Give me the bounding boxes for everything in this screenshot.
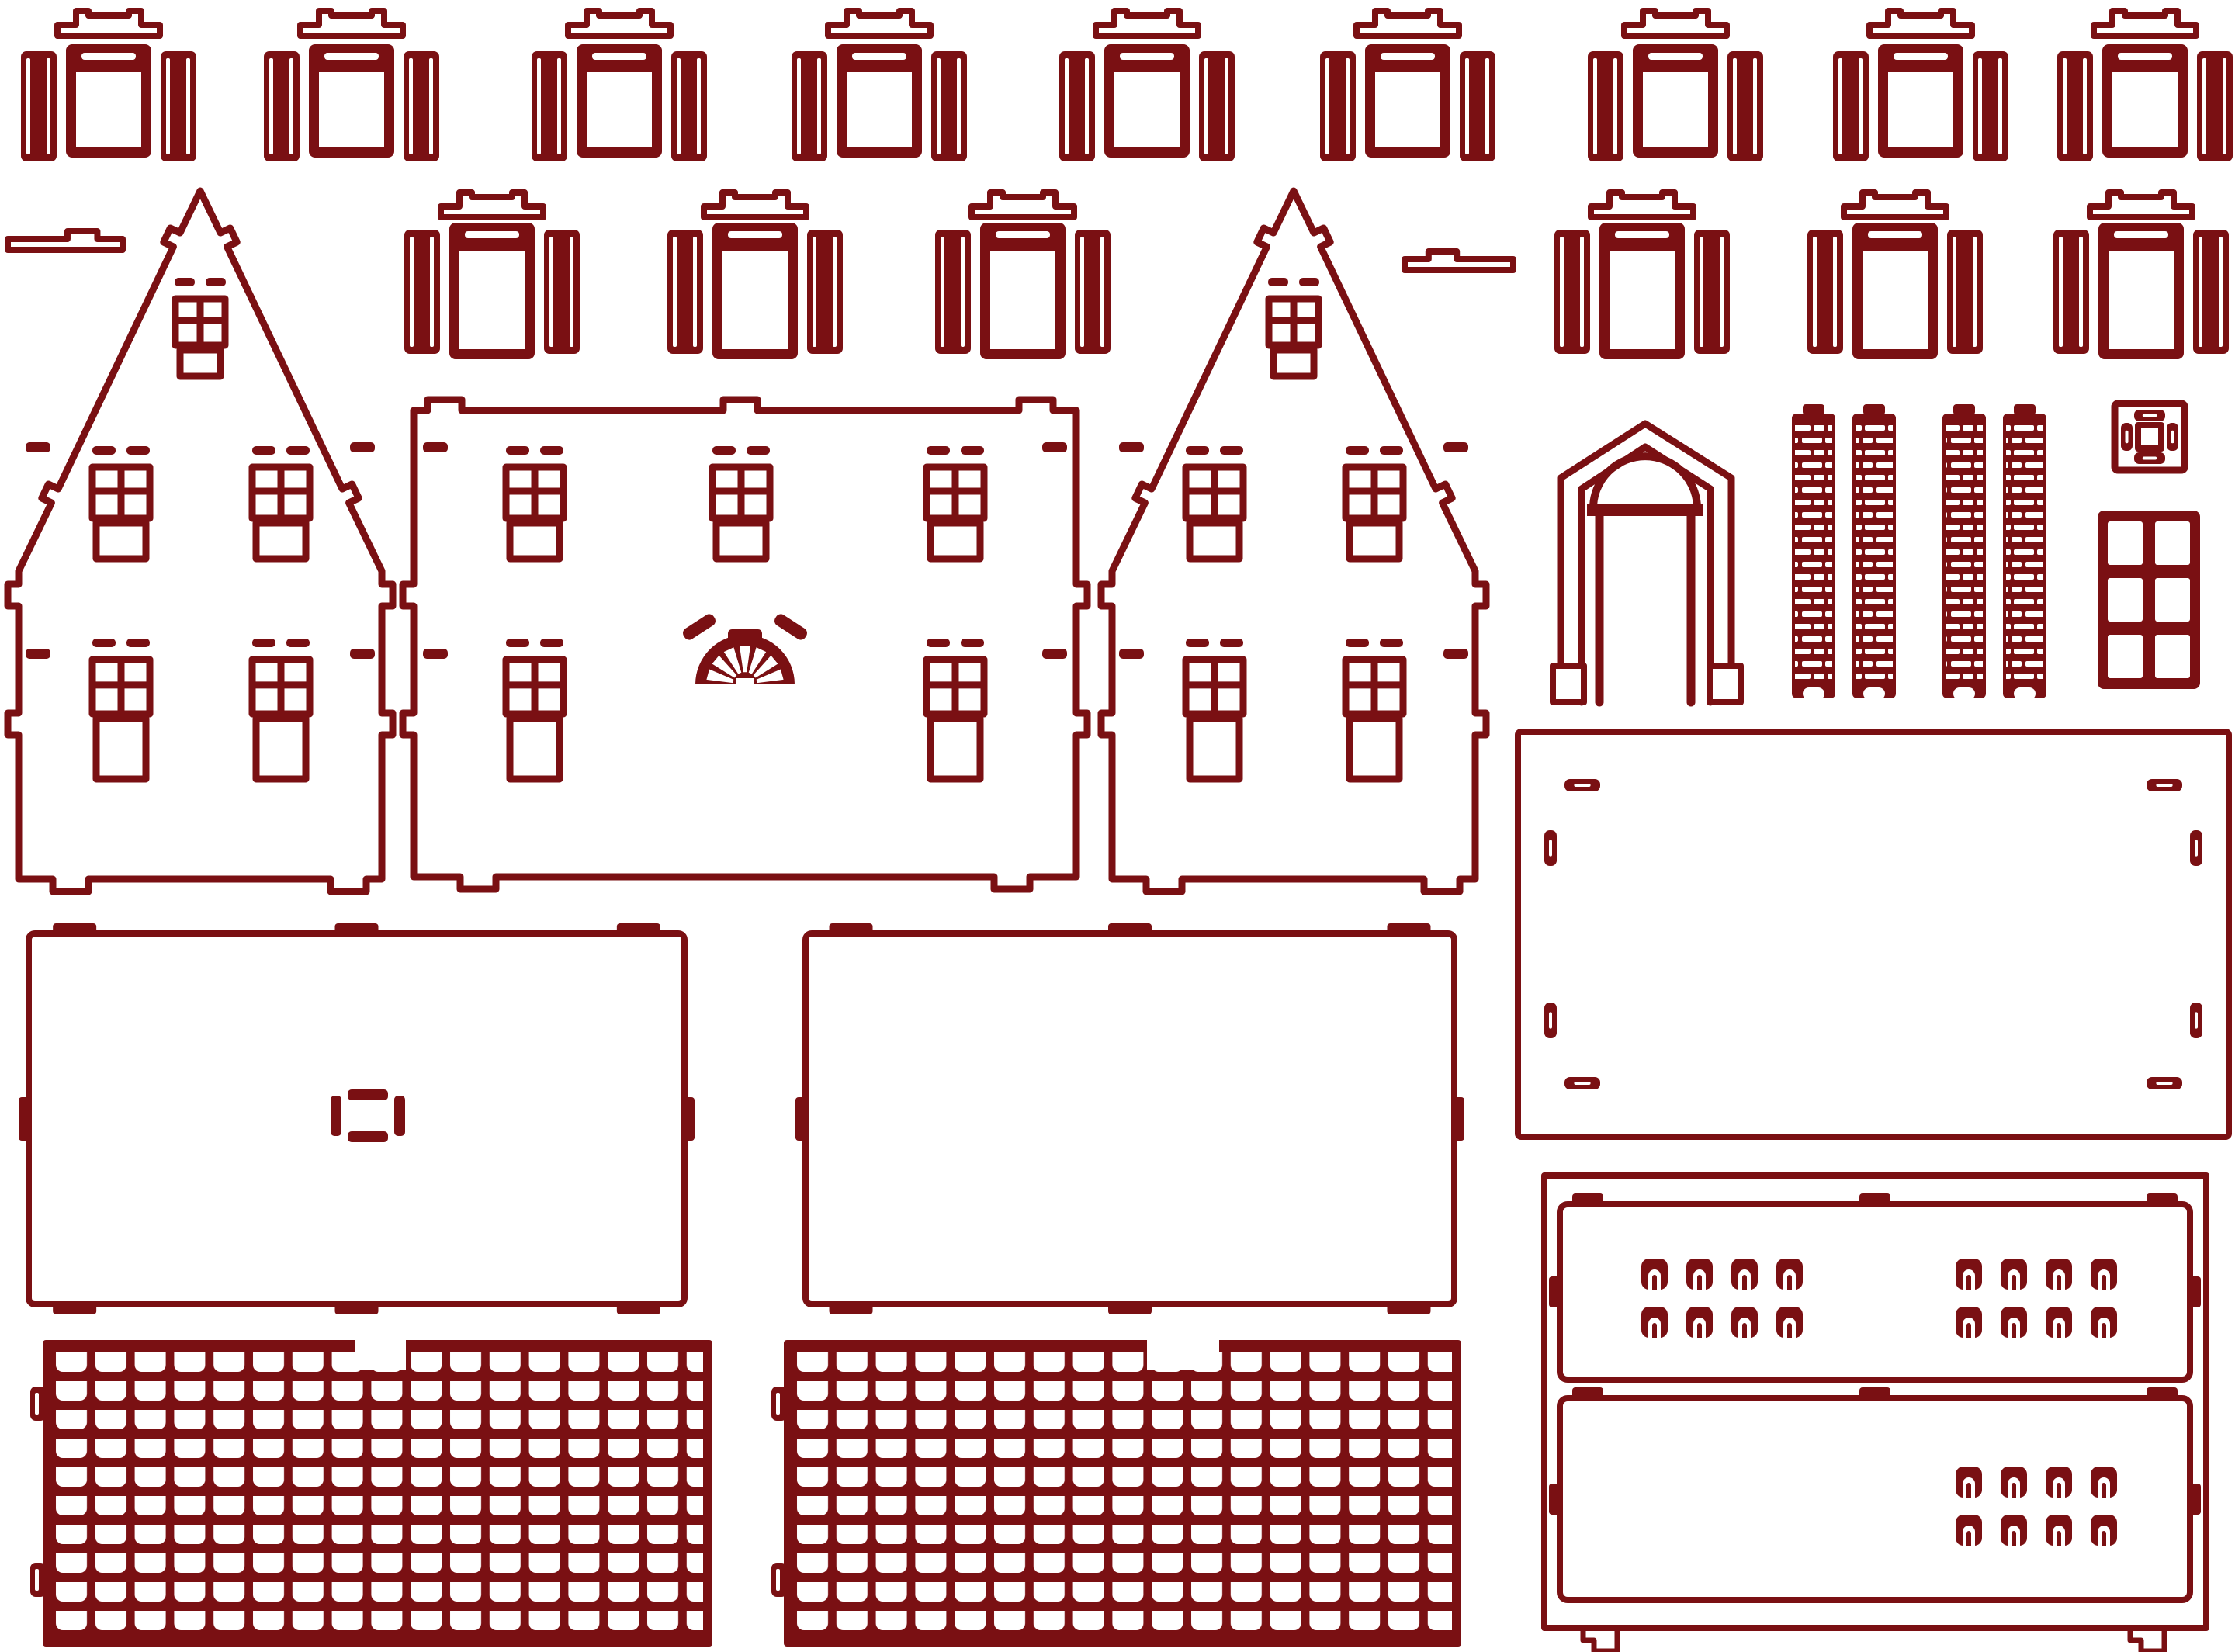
blank-panel [19, 923, 695, 1314]
roof-tile-panel [771, 1339, 1461, 1647]
drawer-clip [2091, 1467, 2117, 1498]
roof-tile-panel [30, 1339, 712, 1647]
shelf-panel [1549, 1387, 2201, 1600]
brick-chimney-strip [1792, 404, 1835, 700]
window-shutter-set [1320, 11, 1495, 161]
window-shutter-set [264, 11, 439, 161]
window-shutter-set [21, 11, 196, 161]
drawer-clip [2091, 1307, 2117, 1338]
drawer-clip [1731, 1307, 1758, 1338]
blank-panel [795, 923, 1464, 1314]
drawer-clip [2046, 1515, 2072, 1546]
window-shutter-set [1059, 11, 1235, 161]
door-arch [1553, 424, 1741, 702]
window-shutter-set [1833, 11, 2008, 161]
drawer-clip [2046, 1307, 2072, 1338]
window-rows [21, 11, 2233, 359]
gable-end-wall [8, 191, 393, 892]
window-shutter-set [404, 192, 580, 359]
drawer-clip [1686, 1307, 1713, 1338]
drawer-clip [1641, 1307, 1668, 1338]
window-shutter-set [667, 192, 843, 359]
drawer-clip [2046, 1259, 2072, 1290]
window-shutter-set [1807, 192, 1983, 359]
window-shutter-set [2057, 11, 2233, 161]
drawer-clip [2091, 1515, 2117, 1546]
drawer-clip [1956, 1259, 1982, 1290]
window-shutter-set [792, 11, 967, 161]
drawer-clip [2001, 1515, 2027, 1546]
drawer-clip [1731, 1259, 1758, 1290]
brick-chimney-strip [1852, 404, 1896, 700]
chimney-cap [2115, 403, 2185, 470]
window-shutter-set [1554, 192, 1730, 359]
window-shutter-set [1588, 11, 1763, 161]
cut-sheet-canvas [0, 0, 2235, 1652]
shelf-panel [1549, 1193, 2201, 1380]
drawer-clip [2046, 1467, 2072, 1498]
drawer-clip [2001, 1307, 2027, 1338]
drawer-clip [1956, 1515, 1982, 1546]
drawer-clip [2091, 1259, 2117, 1290]
drawer-clip [1956, 1467, 1982, 1498]
gable-end-wall [1101, 191, 1486, 892]
drawer-clip [1686, 1259, 1713, 1290]
drawer-clip [1956, 1307, 1982, 1338]
drawer-clip [1776, 1307, 1803, 1338]
laser-cut-parts-sheet: laser-cut dollhouse kit cutting template [0, 0, 2235, 1652]
drawer-clip [2001, 1467, 2027, 1498]
slotted-floor-panel [1518, 732, 2229, 1137]
window-shutter-set [532, 11, 707, 161]
roof-trim [8, 231, 123, 250]
brick-chimney-strip [1942, 404, 1986, 700]
roof-trim [1405, 251, 1513, 270]
window-shutter-set [935, 192, 1111, 359]
drawer-clip [2001, 1259, 2027, 1290]
brick-chimney-strip [2003, 404, 2046, 700]
drawer-clip [1776, 1259, 1803, 1290]
window-shutter-set [2053, 192, 2229, 359]
drawer-clip [1641, 1259, 1668, 1290]
base-assembly [1544, 1176, 2206, 1651]
six-pane-panel [2098, 511, 2200, 689]
front-wall [403, 400, 1087, 889]
